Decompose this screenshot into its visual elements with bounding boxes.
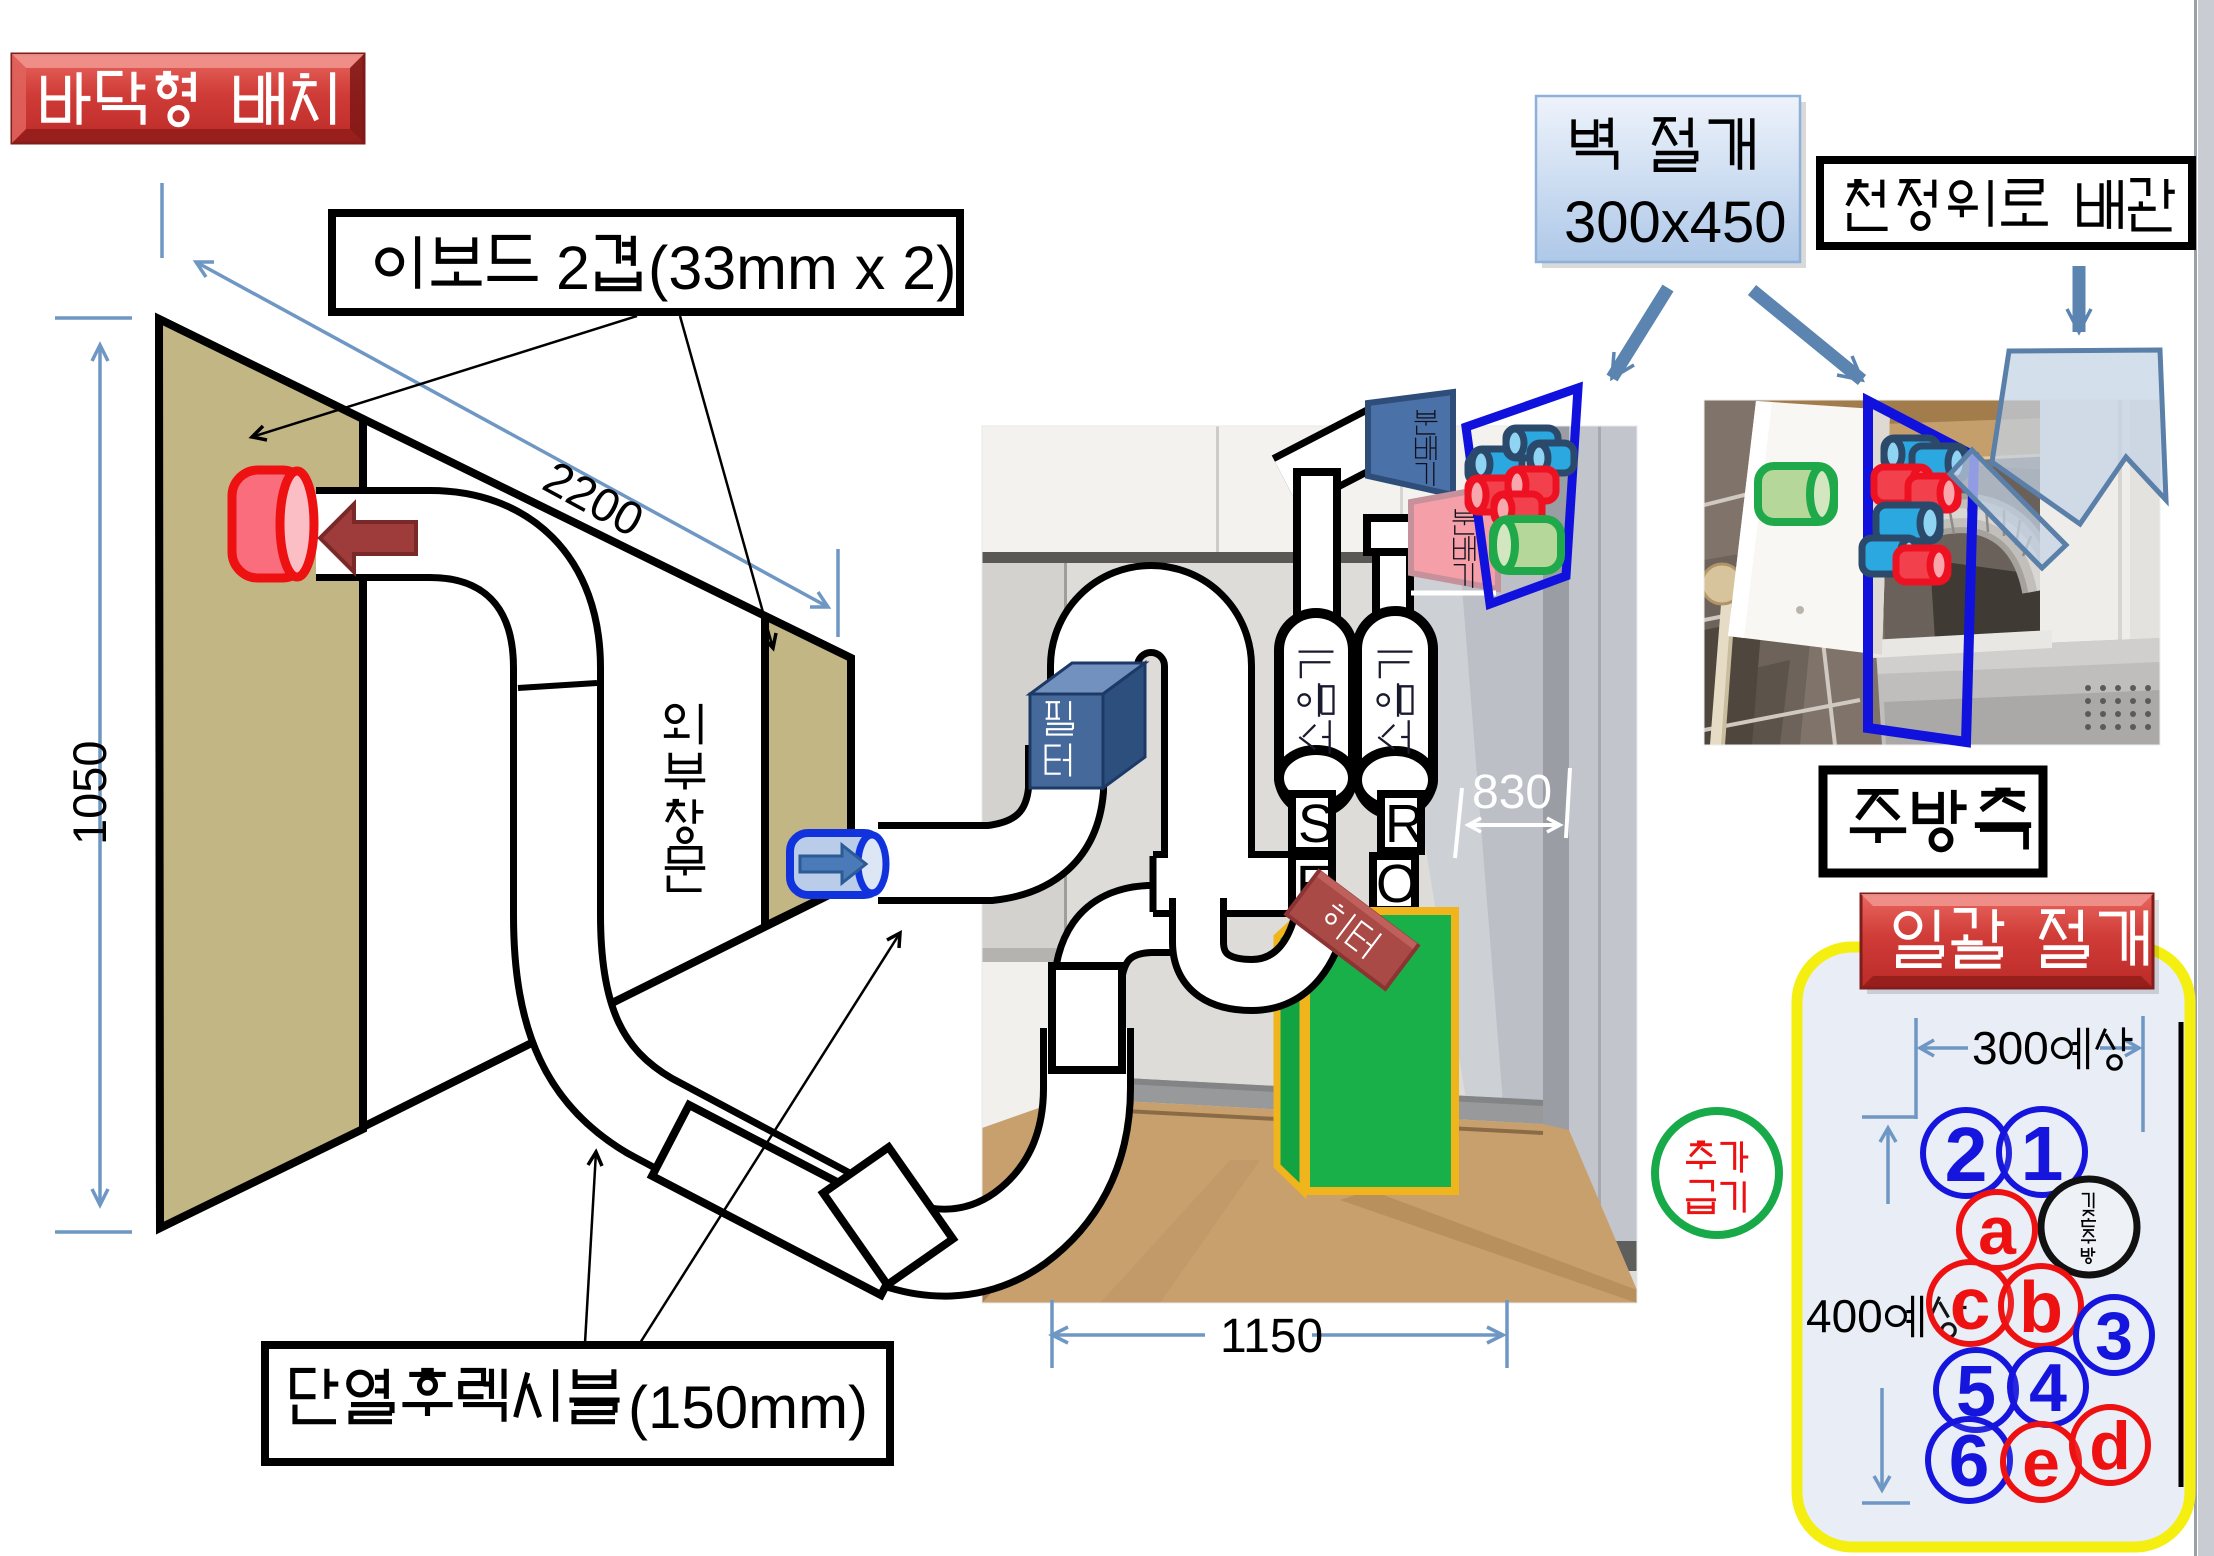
svg-text:4: 4 — [2029, 1350, 2067, 1426]
svg-text:2: 2 — [556, 234, 590, 302]
svg-text:2: 2 — [1945, 1112, 1988, 1198]
svg-text:300x450: 300x450 — [1564, 190, 1787, 255]
svg-text:300: 300 — [1972, 1022, 2049, 1074]
svg-text:O: O — [1376, 854, 1418, 914]
svg-text:6: 6 — [1949, 1421, 1990, 1502]
svg-text:400: 400 — [1806, 1290, 1883, 1342]
svg-text:R: R — [1385, 794, 1424, 854]
svg-text:d: d — [2089, 1408, 2131, 1484]
svg-text:(150mm): (150mm) — [628, 1374, 868, 1441]
svg-text:830: 830 — [1472, 766, 1552, 819]
svg-text:1050: 1050 — [63, 740, 116, 845]
svg-text:1: 1 — [2021, 1111, 2064, 1197]
svg-text:(33mm x 2): (33mm x 2) — [648, 234, 956, 302]
svg-text:a: a — [1978, 1193, 2017, 1269]
svg-text:3: 3 — [2095, 1298, 2133, 1374]
svg-text:S: S — [1298, 794, 1334, 854]
svg-text:b: b — [2019, 1268, 2063, 1348]
svg-text:c: c — [1950, 1264, 1991, 1345]
svg-text:1150: 1150 — [1220, 1310, 1323, 1363]
svg-text:e: e — [2022, 1425, 2060, 1501]
